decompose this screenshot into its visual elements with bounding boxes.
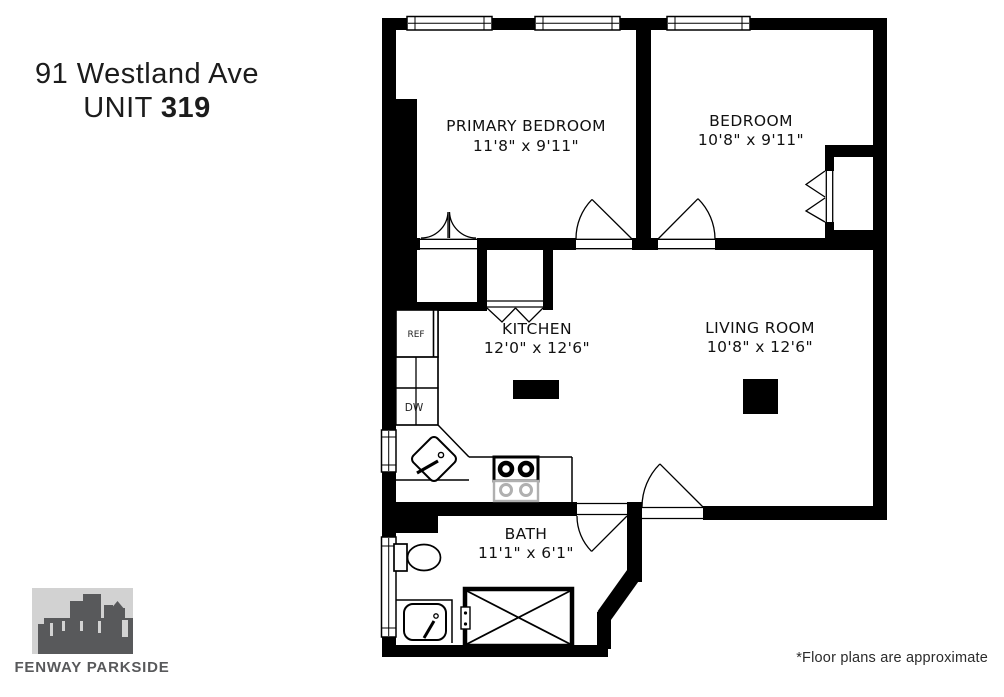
window-primary-bedroom-1 bbox=[407, 17, 492, 31]
bedroom-name: BEDROOM bbox=[709, 112, 793, 130]
living-room-name: LIVING ROOM bbox=[705, 319, 815, 337]
kitchen-column bbox=[513, 380, 559, 399]
bath-door bbox=[577, 516, 627, 551]
skyline-logo-icon bbox=[32, 588, 133, 655]
brand-logo-text: FENWAY PARKSIDE bbox=[12, 659, 172, 676]
toilet bbox=[394, 544, 441, 571]
floor-plan-page: 91 Westland Ave UNIT 319 bbox=[0, 0, 1004, 697]
bedroom-door bbox=[658, 199, 715, 239]
bedroom-closet-bifold bbox=[806, 171, 825, 222]
living-room-column bbox=[743, 379, 778, 414]
primary-bedroom-door bbox=[576, 199, 632, 239]
living-room-dims: 10'8" x 12'6" bbox=[707, 338, 813, 356]
kitchen-name: KITCHEN bbox=[502, 320, 572, 338]
kitchen-sink bbox=[410, 435, 458, 483]
primary-closet-bifold bbox=[421, 212, 476, 238]
primary-bedroom-name: PRIMARY BEDROOM bbox=[446, 117, 606, 135]
bath-sink bbox=[396, 600, 452, 643]
brand-logo: FENWAY PARKSIDE bbox=[12, 588, 172, 676]
window-primary-bedroom-2 bbox=[535, 17, 620, 31]
kitchen-dims: 12'0" x 12'6" bbox=[484, 339, 590, 357]
bath-name: BATH bbox=[505, 525, 548, 543]
bath-dims: 11'1" x 6'1" bbox=[478, 544, 574, 562]
primary-bedroom-dims: 11'8" x 9'11" bbox=[473, 137, 579, 155]
cabinets bbox=[396, 357, 438, 425]
bedroom-dims: 10'8" x 9'11" bbox=[698, 131, 804, 149]
refrigerator-label: REF bbox=[407, 330, 424, 340]
entry-door bbox=[642, 464, 703, 507]
window-kitchen bbox=[382, 430, 397, 472]
door-swings bbox=[421, 171, 825, 551]
structural-columns bbox=[513, 379, 778, 414]
disclaimer-note: *Floor plans are approximate bbox=[796, 650, 988, 666]
window-bedroom bbox=[667, 17, 750, 31]
stove bbox=[494, 457, 538, 501]
bathtub bbox=[461, 589, 572, 646]
dishwasher-label: DW bbox=[405, 402, 424, 414]
